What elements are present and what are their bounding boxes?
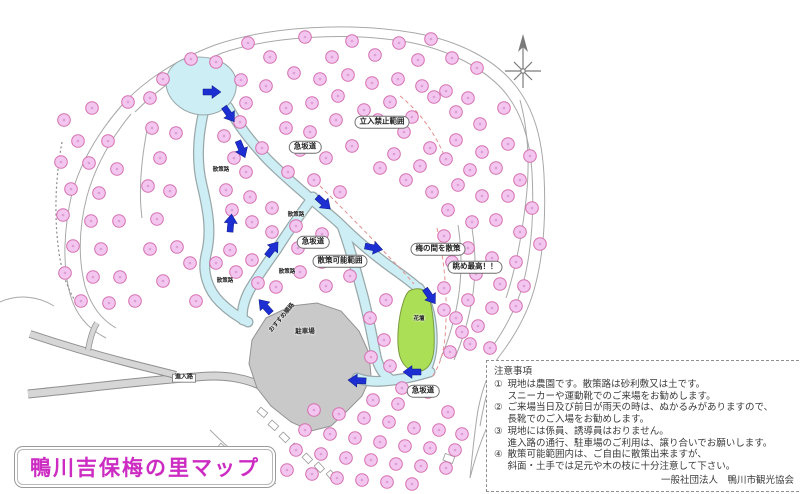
- flower-center-dot: [467, 299, 470, 302]
- flower-center-dot: [403, 131, 406, 134]
- flower-center-dot: [427, 391, 430, 394]
- route-arrow: [224, 214, 239, 233]
- flower-center-dot: [88, 162, 91, 165]
- flower-center-dot: [519, 231, 522, 234]
- page-title: 鴨川吉保梅の里マップ: [30, 456, 260, 480]
- flower-center-dot: [299, 149, 302, 152]
- flower-center-dot: [433, 96, 436, 99]
- flower-center-dot: [321, 233, 324, 236]
- flower-center-dot: [63, 119, 66, 122]
- flower-center-dot: [495, 167, 498, 170]
- flower-center-dot: [331, 56, 334, 59]
- flower-center-dot: [195, 300, 198, 303]
- flower-center-dot: [295, 225, 298, 228]
- flower-center-dot: [190, 58, 193, 61]
- flower-center-dot: [309, 131, 312, 134]
- flower-center-dot: [467, 247, 470, 250]
- flower-center-dot: [261, 147, 264, 150]
- flower-center-dot: [467, 97, 470, 100]
- flower-center-dot: [443, 309, 446, 312]
- flower-center-dot: [285, 127, 288, 130]
- flower-center-dot: [445, 90, 448, 93]
- flower-center-dot: [60, 161, 63, 164]
- flower-center-dot: [249, 196, 252, 199]
- flower-center-dot: [107, 140, 110, 143]
- flower-center-dot: [240, 79, 243, 82]
- flower-center-dot: [245, 171, 248, 174]
- flower-center-dot: [370, 459, 373, 462]
- flower-center-dot: [337, 95, 340, 98]
- flower-center-dot: [295, 449, 298, 452]
- flower-center-dot: [304, 36, 307, 39]
- flower-center-dot: [445, 467, 448, 470]
- notes-items: ①現地は農園です。散策路は砂利敷又は土です。スニーカーや運動靴でのご来場をお勧め…: [494, 379, 796, 473]
- flower-center-dot: [395, 463, 398, 466]
- flower-center-dot: [363, 109, 366, 112]
- flower-center-dot: [247, 42, 250, 45]
- flower-center-dot: [325, 285, 328, 288]
- flower-center-dot: [235, 271, 238, 274]
- flower-center-dot: [455, 111, 458, 114]
- flower-center-dot: [476, 67, 479, 70]
- flower-center-dot: [313, 179, 316, 182]
- flower-center-dot: [119, 276, 122, 279]
- flower-center-dot: [420, 465, 423, 468]
- notes-heading: 注意事項: [494, 366, 796, 378]
- note-item: ②ご来場当日及び前日が雨天の時は、ぬかるみがありますので、長靴でのご入場をお勧め…: [494, 402, 796, 426]
- flower-center-dot: [151, 127, 154, 130]
- flower-center-dot: [349, 275, 352, 278]
- flower-center-dot: [127, 101, 130, 104]
- flower-center-dot: [469, 169, 472, 172]
- flower-center-dot: [411, 116, 414, 119]
- flower-center-dot: [379, 441, 382, 444]
- note-item: ①現地は農園です。散策路は砂利敷又は土です。スニーカーや運動靴でのご来場をお勧め…: [494, 379, 796, 403]
- flower-center-dot: [251, 259, 254, 262]
- flower-center-dot: [92, 276, 95, 279]
- flower-center-dot: [475, 273, 478, 276]
- flower-center-dot: [469, 343, 472, 346]
- flower-center-dot: [372, 399, 375, 402]
- flower-center-dot: [429, 447, 432, 450]
- flower-center-dot: [515, 305, 518, 308]
- flower-center-dot: [385, 299, 388, 302]
- flower-center-dot: [539, 243, 542, 246]
- flower-center-dot: [70, 188, 73, 191]
- flower-center-dot: [116, 168, 119, 171]
- flower-center-dot: [523, 285, 526, 288]
- flower-center-dot: [417, 59, 420, 62]
- flower-center-dot: [297, 247, 300, 250]
- flower-center-dot: [401, 387, 404, 390]
- note-number: ①: [494, 379, 503, 403]
- flower-center-dot: [491, 307, 494, 310]
- flower-center-dot: [519, 179, 522, 182]
- note-item: ③現地には係員、誘導員はおりません。進入路の通行、駐車場のご利用は、譲り合いでお…: [494, 426, 796, 450]
- flower-center-dot: [351, 40, 354, 43]
- flower-center-dot: [454, 449, 457, 452]
- flower-center-dot: [271, 207, 274, 210]
- flower-center-dot: [447, 209, 450, 212]
- note-number: ④: [494, 449, 503, 473]
- flower-center-dot: [388, 421, 391, 424]
- flower-center-dot: [397, 403, 400, 406]
- flower-center-dot: [379, 167, 382, 170]
- flower-center-dot: [507, 143, 510, 146]
- note-text: 現地は農園です。散策路は砂利敷又は土です。スニーカーや運動靴でのご来場をお勧めし…: [508, 379, 716, 403]
- flower-center-dot: [134, 300, 137, 303]
- flower-center-dot: [449, 351, 452, 354]
- flower-center-dot: [374, 54, 377, 57]
- flower-center-dot: [311, 102, 314, 105]
- flower-center-dot: [319, 78, 322, 81]
- flower-center-dot: [455, 139, 458, 142]
- flower-center-dot: [447, 411, 450, 414]
- flower-center-dot: [491, 257, 494, 260]
- note-text: 散策可能範囲内は、ご自由に散策出来ますが、斜面・土手では足元や木の枝に十分注意し…: [508, 449, 736, 473]
- flower-center-dot: [286, 469, 289, 472]
- flower-center-dot: [431, 191, 434, 194]
- flower-center-dot: [461, 433, 464, 436]
- flower-center-dot: [339, 191, 342, 194]
- flower-center-dot: [438, 429, 441, 432]
- flower-center-dot: [299, 271, 302, 274]
- flower-center-dot: [489, 347, 492, 350]
- flower-center-dot: [147, 185, 150, 188]
- flower-center-dot: [257, 282, 260, 285]
- flower-center-dot: [108, 302, 111, 305]
- flower-center-dot: [389, 101, 392, 104]
- flower-center-dot: [329, 433, 332, 436]
- note-number: ③: [494, 426, 503, 450]
- flower-center-dot: [481, 195, 484, 198]
- flower-center-dot: [515, 261, 518, 264]
- flower-center-dot: [156, 218, 159, 221]
- flower-center-dot: [351, 145, 354, 148]
- flower-center-dot: [335, 119, 338, 122]
- flower-center-dot: [239, 121, 242, 124]
- flower-center-dot: [361, 479, 364, 482]
- flower-center-dot: [499, 283, 502, 286]
- flower-center-dot: [159, 157, 162, 160]
- flower-center-dot: [72, 245, 75, 248]
- flower-center-dot: [529, 155, 532, 158]
- flower-center-dot: [443, 287, 446, 290]
- flower-center-dot: [98, 192, 101, 195]
- flower-center-dot: [189, 262, 192, 265]
- notes-attribution: 一般社団法人 鴨川市観光協会: [494, 475, 796, 487]
- flower-center-dot: [347, 74, 350, 77]
- flower-center-dot: [269, 56, 272, 59]
- flower-center-dot: [471, 221, 474, 224]
- flower-center-dot: [507, 195, 510, 198]
- flower-center-dot: [285, 107, 288, 110]
- flower-center-dot: [169, 190, 172, 193]
- flower-center-dot: [377, 119, 380, 122]
- flower-center-dot: [304, 429, 307, 432]
- flower-center-dot: [430, 38, 433, 41]
- flower-center-dot: [338, 413, 341, 416]
- flower-center-dot: [354, 437, 357, 440]
- flower-center-dot: [91, 107, 94, 110]
- flower-center-dot: [225, 189, 228, 192]
- flower-center-dot: [398, 42, 401, 45]
- flower-center-dot: [275, 286, 278, 289]
- flower-center-dot: [531, 207, 534, 210]
- flower-center-dot: [293, 72, 296, 75]
- flower-center-dot: [229, 249, 232, 252]
- flower-center-dot: [77, 140, 80, 143]
- flower-center-dot: [363, 417, 366, 420]
- flower-center-dot: [223, 135, 226, 138]
- flower-center-dot: [445, 158, 448, 161]
- flower-center-dot: [100, 248, 103, 251]
- flower-center-dot: [421, 85, 424, 88]
- flower-center-dot: [369, 317, 372, 320]
- flower-center-dot: [386, 481, 389, 484]
- flower-center-dot: [419, 165, 422, 168]
- notes-box: 注意事項 ①現地は農園です。散策路は砂利敷又は土です。スニーカーや運動靴でのご来…: [486, 360, 800, 492]
- flower-center-dot: [503, 107, 506, 110]
- flower-center-dot: [461, 331, 464, 334]
- note-item: ④散策可能範囲内は、ご自由に散策出来ますが、斜面・土手では足元や木の枝に十分注意…: [494, 449, 796, 473]
- route-arrow: [254, 295, 276, 317]
- flower-center-dot: [477, 325, 480, 328]
- flower-center-dot: [90, 220, 93, 223]
- flower-center-dot: [397, 78, 400, 81]
- flower-center-dot: [162, 280, 165, 283]
- flower-center-dot: [393, 153, 396, 156]
- flower-center-dot: [176, 246, 179, 249]
- flower-center-dot: [371, 82, 374, 85]
- flower-center-dot: [313, 409, 316, 412]
- flower-center-dot: [311, 473, 314, 476]
- note-text: 現地には係員、誘導員はおりません。進入路の通行、駐車場のご利用は、譲り合いでお願…: [508, 426, 773, 450]
- flower-center-dot: [265, 85, 268, 88]
- flower-center-dot: [443, 235, 446, 238]
- flower-center-dot: [231, 209, 234, 212]
- flower-center-dot: [162, 78, 165, 81]
- flower-center-dot: [404, 445, 407, 448]
- flower-center-dot: [495, 219, 498, 222]
- flower-center-dot: [271, 231, 274, 234]
- flower-center-dot: [175, 132, 178, 135]
- flower-center-dot: [451, 261, 454, 264]
- flower-center-dot: [481, 151, 484, 154]
- flower-center-dot: [383, 339, 386, 342]
- flower-center-dot: [336, 477, 339, 480]
- flower-center-dot: [413, 427, 416, 430]
- flower-center-dot: [345, 457, 348, 460]
- flower-center-dot: [320, 453, 323, 456]
- flower-center-dot: [429, 147, 432, 150]
- flower-center-dot: [215, 262, 218, 265]
- flower-center-dot: [245, 102, 248, 105]
- flower-center-dot: [405, 179, 408, 182]
- flower-center-dot: [451, 57, 454, 60]
- flower-center-dot: [287, 171, 290, 174]
- flower-center-dot: [370, 356, 373, 359]
- flower-center-dot: [149, 248, 152, 251]
- flower-center-dot: [457, 184, 460, 187]
- note-text: ご来場当日及び前日が雨天の時は、ぬかるみがありますので、長靴でのご入場をお勧めし…: [508, 402, 774, 426]
- flower-center-dot: [455, 317, 458, 320]
- flower-center-dot: [215, 61, 218, 64]
- flower-center-dot: [251, 221, 254, 224]
- flower-center-dot: [80, 300, 83, 303]
- map-page: 立入禁止範囲急坂道急坂道散策可能範囲梅の間を散策眺め最高！！急坂道散策路散策路散…: [0, 0, 800, 494]
- flower-center-dot: [321, 261, 324, 264]
- flower-center-dot: [389, 365, 392, 368]
- flower-center-dot: [479, 123, 482, 126]
- title-box: 鴨川吉保梅の里マップ: [14, 446, 276, 488]
- flower-center-dot: [233, 157, 236, 160]
- flower-center-dot: [118, 220, 121, 223]
- note-number: ②: [494, 402, 503, 426]
- flower-center-dot: [411, 483, 414, 486]
- flower-center-dot: [64, 272, 67, 275]
- flower-center-dot: [62, 214, 65, 217]
- flower-center-dot: [325, 157, 328, 160]
- flower-center-dot: [149, 97, 152, 100]
